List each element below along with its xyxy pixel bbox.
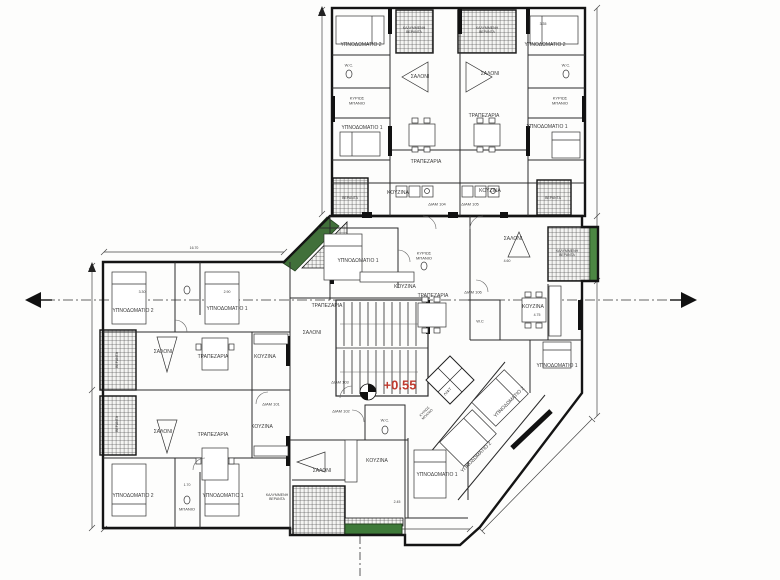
floor-plan-drawing [0,0,780,580]
dimension-arrow-icon [88,6,326,272]
level-marker-icon [360,384,376,400]
staircase [336,300,428,396]
floor-plan-page: ΥΠΝΟΔΩΜΑΤΙΟ 2W.C.ΚΥΡΙΩΣ ΜΠΑΝΙΟΥΠΝΟΔΩΜΑΤΙ… [0,0,780,580]
elevator-shaft [426,356,474,404]
furniture [112,16,580,516]
section-line [45,300,683,578]
planter-strip-bottom [345,524,402,534]
